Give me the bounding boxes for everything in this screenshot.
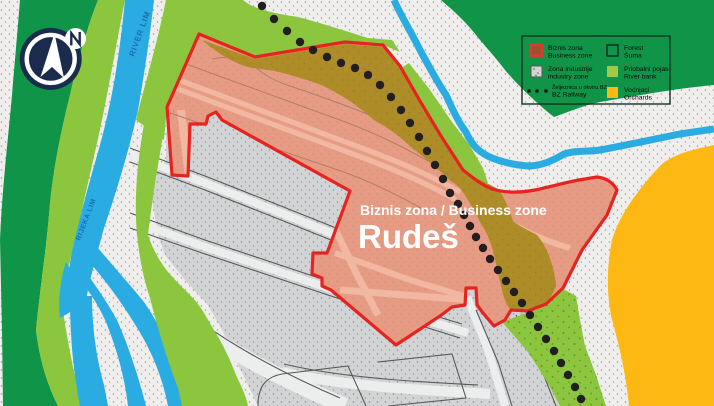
- svg-text:Voćnjaci: Voćnjaci: [624, 87, 650, 94]
- svg-text:Forest: Forest: [624, 45, 643, 52]
- svg-text:Šuma: Šuma: [624, 51, 642, 60]
- svg-text:BZ Railway: BZ Railway: [552, 92, 587, 99]
- svg-text:industry zone: industry zone: [548, 74, 589, 81]
- svg-text:Rudeš: Rudeš: [358, 218, 459, 255]
- svg-text:Zona industrije: Zona industrije: [548, 66, 593, 73]
- svg-text:Orchards: Orchards: [624, 95, 653, 102]
- svg-text:River bank: River bank: [624, 74, 657, 81]
- svg-text:Biznis zona / Business zone: Biznis zona / Business zone: [360, 202, 547, 218]
- svg-text:Željeznica u okviru BZ: Željeznica u okviru BZ: [552, 83, 608, 91]
- svg-text:Biznis zona: Biznis zona: [548, 45, 583, 52]
- svg-text:Priobalni pojas: Priobalni pojas: [624, 66, 669, 73]
- svg-text:Business zone: Business zone: [548, 53, 592, 60]
